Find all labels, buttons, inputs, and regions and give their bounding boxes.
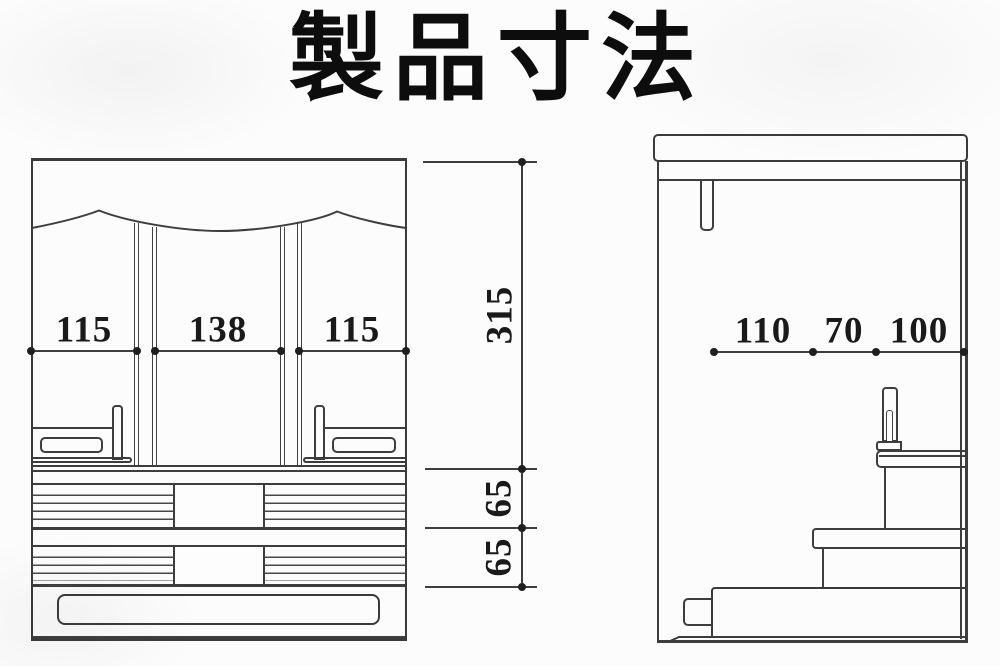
left-shelf-top-line xyxy=(33,427,114,429)
front-post-left-a xyxy=(134,223,139,465)
drawer-center-panel xyxy=(173,485,265,527)
left-shelf-post xyxy=(112,405,123,460)
front-drawer-row-2 xyxy=(33,545,405,587)
front-width-dim-label-1: 115 xyxy=(56,309,112,352)
side-shelf-post-slot xyxy=(886,410,893,442)
front-post-right-a xyxy=(280,227,285,465)
drawer-slats-left xyxy=(33,488,173,524)
height-dim-label-3: 65 xyxy=(478,538,521,577)
dim-dot xyxy=(710,348,718,356)
height-dim-label-1: 315 xyxy=(479,286,522,345)
dim-dot xyxy=(133,347,141,355)
front-base-inner-line xyxy=(33,636,405,638)
side-depth-dim-label-3: 100 xyxy=(890,310,949,353)
front-base-panel xyxy=(57,594,380,625)
front-width-dim-label-2: 138 xyxy=(189,309,248,352)
drawer-slats-right xyxy=(265,550,405,581)
side-bottom-outer-line xyxy=(657,640,968,643)
product-dimension-drawing: 製品寸法 115 138 115 xyxy=(0,0,1000,666)
dim-dot xyxy=(518,158,526,166)
right-shelf-ledge xyxy=(303,457,405,463)
side-shelf-board-inner-line xyxy=(879,455,965,457)
side-top-slot xyxy=(700,181,714,231)
side-depth-dim-label-1: 110 xyxy=(735,310,791,353)
side-right-edge-inner xyxy=(960,161,962,639)
right-shelf-top-line xyxy=(324,427,405,429)
drawer-slats-left xyxy=(33,550,173,581)
dim-dot xyxy=(518,583,526,591)
side-depth-dim-label-2: 70 xyxy=(825,310,864,353)
front-post-right-b xyxy=(297,223,302,465)
side-left-edge xyxy=(657,161,659,642)
dim-dot xyxy=(295,347,303,355)
right-shelf-drawer xyxy=(332,437,396,453)
right-shelf-post xyxy=(314,405,325,460)
dim-dot xyxy=(518,465,526,473)
page-title: 製品寸法 xyxy=(289,10,705,110)
side-shelf-board xyxy=(876,450,966,468)
dim-dot xyxy=(151,347,159,355)
dim-dot xyxy=(27,347,35,355)
side-middle-step xyxy=(812,528,966,549)
left-shelf-drawer xyxy=(40,437,103,453)
dim-dot xyxy=(518,524,526,532)
side-right-edge-outer xyxy=(965,161,968,642)
dim-dot xyxy=(277,347,285,355)
side-top-cap xyxy=(653,134,968,162)
front-width-dim-label-3: 115 xyxy=(324,309,380,352)
dim-dot xyxy=(402,347,410,355)
drawer-center-panel xyxy=(173,547,265,584)
left-shelf-ledge xyxy=(33,457,132,463)
front-shelf-board xyxy=(33,465,405,472)
dim-dot xyxy=(960,348,968,356)
front-post-left-b xyxy=(152,227,157,465)
drawer-slats-right xyxy=(265,488,405,524)
dim-dot xyxy=(872,348,880,356)
side-bottom-step xyxy=(711,587,966,637)
dim-dot xyxy=(809,348,817,356)
side-foot-knob xyxy=(683,598,712,626)
front-drawer-row-1 xyxy=(33,483,405,530)
height-dim-label-2: 65 xyxy=(478,479,521,518)
side-step-riser-1 xyxy=(884,468,886,528)
side-step-riser-2 xyxy=(822,548,824,587)
